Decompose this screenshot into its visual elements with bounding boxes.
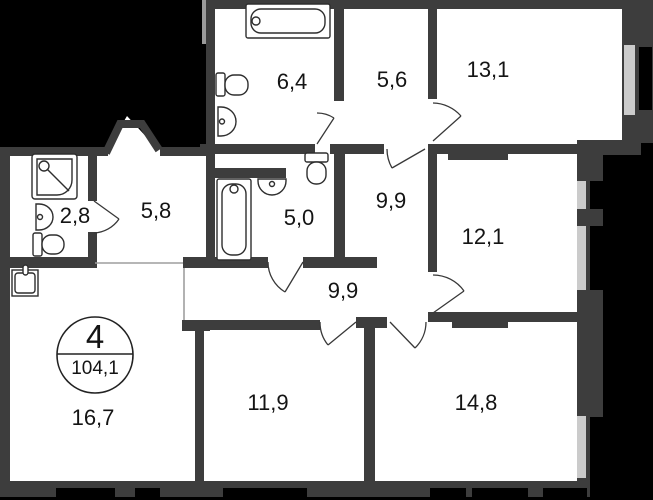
wall-11-9-14-8 xyxy=(364,327,375,481)
window-bar-14-8-d xyxy=(543,488,587,500)
window-13-1 xyxy=(624,45,635,115)
window-12-1-b xyxy=(577,226,586,290)
window-bar-16-7-b xyxy=(135,488,160,500)
room-label-bedroom-12-1: 12,1 xyxy=(462,224,505,250)
bathtub-icon xyxy=(217,179,251,260)
room-label-bedroom-14-8: 14,8 xyxy=(455,390,498,416)
shower-icon xyxy=(32,154,77,199)
unit-total-area: 104,1 xyxy=(71,358,119,380)
wall-wc-hall-a xyxy=(88,147,97,201)
room-label-hallway: 5,8 xyxy=(141,198,172,224)
wall-13-1-bottom xyxy=(428,144,622,154)
wall-vert-left-of-bath xyxy=(206,0,215,268)
wall-bath2-jog xyxy=(211,168,286,178)
outside-top-left xyxy=(0,0,206,147)
outside-right xyxy=(603,143,653,500)
unit-rooms-count: 4 xyxy=(86,318,104,356)
room-label-corridor-lower: 9,9 xyxy=(328,278,359,304)
toilet-icon xyxy=(216,73,248,96)
toilet-icon xyxy=(33,233,64,256)
wall-door-separator xyxy=(356,317,387,328)
wall-bath2-corr xyxy=(334,144,345,268)
wall-bath-bottom xyxy=(200,144,315,154)
window-12-1-a xyxy=(577,181,586,209)
room-label-bedroom-13-1: 13,1 xyxy=(467,57,510,83)
window-bar-12-1-b xyxy=(590,226,603,290)
toilet-icon xyxy=(305,153,328,184)
room-label-entry-hall: 5,6 xyxy=(377,67,408,93)
room-label-wc-shower: 2,8 xyxy=(60,203,91,229)
wall-hall-bottom xyxy=(330,144,384,154)
floorplan-canvas: 6,4 5,6 13,1 2,8 5,8 5,0 9,9 12,1 9,9 16… xyxy=(0,0,653,500)
wall-wc-bottom xyxy=(0,257,97,268)
room-label-bedroom-11-9: 11,9 xyxy=(247,390,288,416)
room-label-bathroom-top: 6,4 xyxy=(277,69,308,95)
window-bar-13-1 xyxy=(639,47,652,110)
window-bar-16-7-a xyxy=(56,488,115,500)
window-bar-14-8-c xyxy=(472,488,528,500)
window-bar-14-8 xyxy=(590,417,603,497)
wall-thick-chunk-bottom xyxy=(452,322,508,328)
wall-hall-13-1 xyxy=(428,0,437,99)
wall-corr-12-1 xyxy=(428,144,437,272)
bathtub-icon xyxy=(246,4,330,38)
wall-bath-hall xyxy=(334,0,344,101)
room-label-kitchen-living: 16,7 xyxy=(72,405,115,431)
room-label-corridor-upper: 9,9 xyxy=(376,188,407,214)
wall-11-9-top xyxy=(195,320,320,330)
wall-left xyxy=(0,147,10,487)
window-bar-11-9 xyxy=(223,488,307,500)
window-bar-12-1-a xyxy=(590,181,603,209)
wall-12-1-bottom xyxy=(428,312,577,322)
wall-thick-chunk-top xyxy=(448,154,508,160)
window-bar-14-8-b xyxy=(430,488,466,500)
kitchen-sink-icon xyxy=(12,265,38,296)
wall-16-7-11-9 xyxy=(195,320,204,481)
window-14-8 xyxy=(577,416,586,478)
room-label-bathroom-second: 5,0 xyxy=(284,205,315,231)
